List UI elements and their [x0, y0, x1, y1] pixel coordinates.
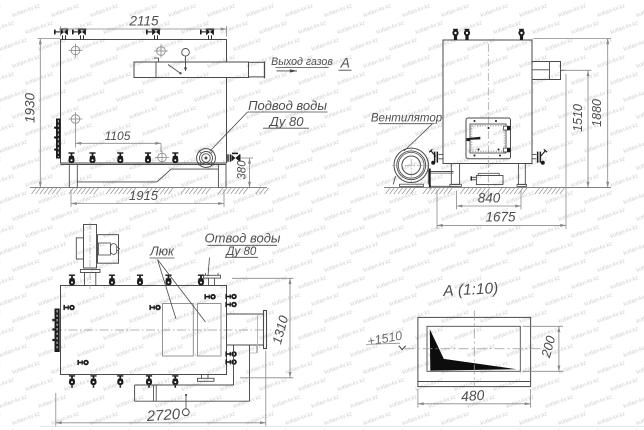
svg-text:1915: 1915	[129, 188, 159, 203]
svg-text:480: 480	[460, 387, 485, 405]
svg-text:Ду 80: Ду 80	[224, 246, 257, 258]
svg-text:380: 380	[237, 160, 249, 180]
svg-text:2115: 2115	[128, 14, 159, 29]
svg-text:840: 840	[478, 191, 501, 206]
svg-text:1675: 1675	[485, 210, 516, 225]
svg-text:Вентилятор: Вентилятор	[371, 113, 443, 125]
svg-text:2720: 2720	[145, 406, 181, 425]
svg-text:Подвод воды: Подвод воды	[248, 98, 327, 113]
svg-text:А (1:10): А (1:10)	[442, 280, 499, 300]
svg-text:1510: 1510	[571, 104, 585, 132]
svg-text:1105: 1105	[105, 129, 131, 143]
svg-text:А: А	[340, 55, 350, 71]
svg-text:Ду 80: Ду 80	[268, 114, 305, 129]
svg-text:Отвод воды: Отвод воды	[205, 231, 281, 246]
svg-text:1930: 1930	[23, 92, 38, 123]
svg-text:Люк: Люк	[149, 245, 175, 259]
svg-text:Выход газов: Выход газов	[271, 56, 333, 68]
svg-text:1880: 1880	[590, 99, 604, 127]
